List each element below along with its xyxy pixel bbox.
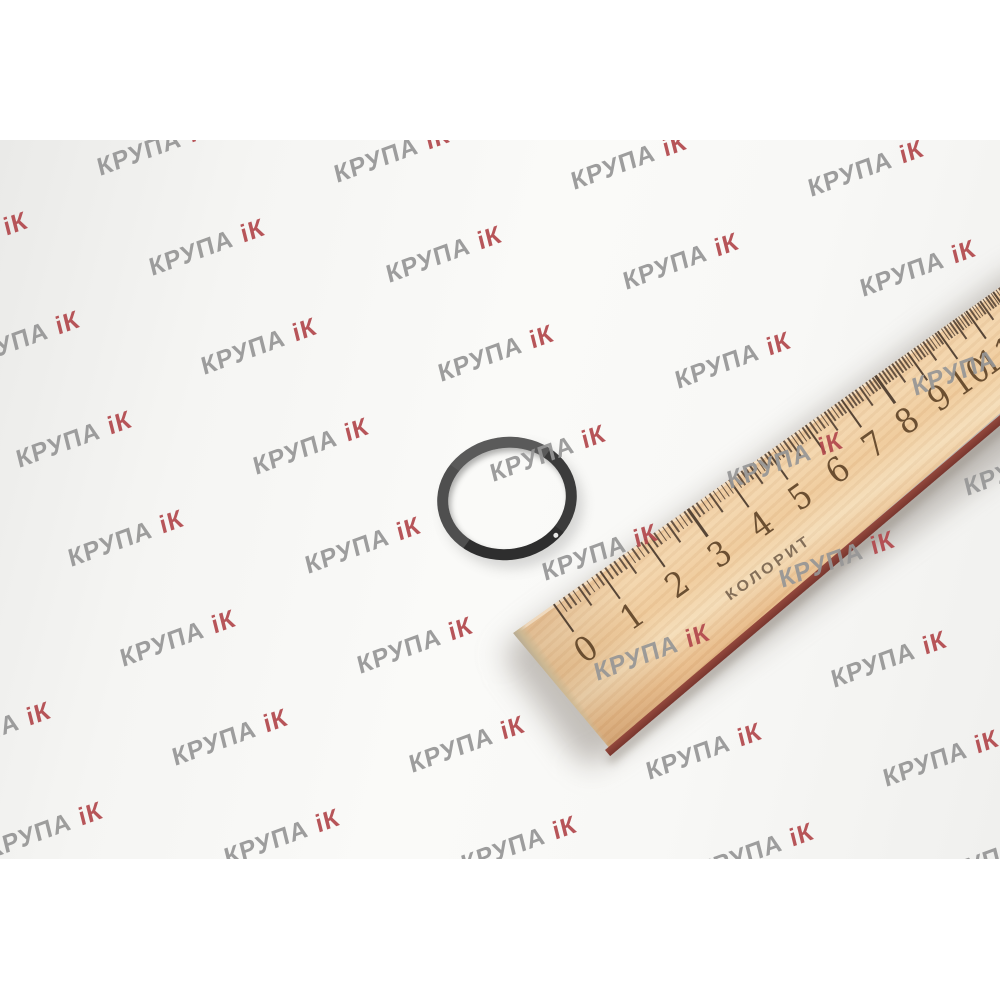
watermark-text-red: іК bbox=[238, 213, 268, 249]
watermark-text-red: іК bbox=[550, 810, 580, 846]
watermark-text-gray: КРУПА bbox=[932, 835, 1000, 859]
watermark-text-red: іК bbox=[787, 817, 817, 853]
watermark-text-gray: КРУПА bbox=[568, 140, 658, 196]
watermark-text-red: іК bbox=[186, 140, 216, 149]
watermark: КРУПАіК bbox=[221, 803, 342, 859]
watermark-text-red: іК bbox=[527, 319, 557, 355]
watermark-text-red: іК bbox=[735, 717, 765, 753]
watermark: КРУПАіК bbox=[695, 817, 816, 859]
watermark-text-gray: КРУПА bbox=[383, 231, 473, 288]
ruler-number: 3 bbox=[700, 532, 739, 576]
watermark-text-gray: КРУПА bbox=[331, 140, 421, 189]
watermark: КРУПАіК bbox=[880, 724, 1000, 794]
watermark-text-red: іК bbox=[157, 504, 187, 540]
watermark-text-red: іК bbox=[209, 604, 239, 640]
watermark: КРУПАіК bbox=[117, 604, 238, 674]
watermark-text-gray: КРУПА bbox=[828, 636, 918, 693]
watermark: КРУПАіК bbox=[250, 412, 371, 482]
watermark: КРУПАіК bbox=[0, 597, 2, 667]
watermark-text-red: іК bbox=[0, 597, 1, 633]
watermark-text-red: іК bbox=[972, 724, 1000, 760]
watermark: КРУПАіК bbox=[0, 696, 54, 766]
watermark: КРУПАіК bbox=[198, 312, 319, 382]
watermark: КРУПАіК bbox=[0, 305, 83, 375]
watermark-text-red: іК bbox=[1, 206, 31, 242]
watermark-text-red: іК bbox=[579, 419, 609, 455]
watermark-text-gray: КРУПА bbox=[221, 814, 311, 859]
ruler-number: 6 bbox=[818, 449, 857, 493]
ruler-number: 5 bbox=[781, 475, 820, 519]
watermark-text-gray: КРУПА bbox=[672, 337, 762, 394]
watermark: КРУПАіК bbox=[65, 504, 186, 574]
watermark-text-red: іК bbox=[313, 803, 343, 839]
watermark: КРУПАіК bbox=[805, 140, 926, 204]
watermark-text-red: іК bbox=[764, 326, 794, 362]
ruler-number: 8 bbox=[888, 399, 927, 443]
watermark-text-gray: КРУПА bbox=[643, 728, 733, 785]
watermark-text-red: іК bbox=[290, 312, 320, 348]
watermark: КРУПАіК bbox=[146, 213, 267, 283]
ruler-number: 4 bbox=[742, 503, 781, 547]
watermark-text-gray: КРУПА bbox=[302, 522, 392, 579]
watermark: КРУПАіК bbox=[568, 140, 689, 197]
watermark: КРУПАіК bbox=[620, 227, 741, 297]
watermark-text-red: іК bbox=[261, 703, 291, 739]
watermark-text-gray: КРУПА bbox=[857, 245, 947, 302]
o-ring bbox=[428, 427, 586, 570]
watermark-text-gray: КРУПА bbox=[880, 735, 970, 792]
watermark-text-red: іК bbox=[897, 140, 927, 170]
watermark: КРУПАіК bbox=[672, 326, 793, 396]
ruler: КОЛОРИТ 01234567891011 bbox=[513, 184, 1000, 755]
ruler-number: 2 bbox=[658, 563, 697, 607]
o-ring-highlight bbox=[553, 532, 559, 538]
watermark-text-red: іК bbox=[394, 511, 424, 547]
watermark-text-gray: КРУПА bbox=[435, 330, 525, 387]
watermark-text-red: іК bbox=[53, 305, 83, 341]
watermark-text-red: іК bbox=[423, 140, 453, 156]
watermark: КРУПАіК bbox=[932, 824, 1000, 859]
watermark: КРУПАіК bbox=[169, 703, 290, 773]
watermark: КРУПАіК bbox=[13, 405, 134, 475]
watermark-text-gray: КРУПА bbox=[695, 828, 785, 859]
watermark: КРУПАіК bbox=[643, 717, 764, 787]
watermark-text-gray: КРУПА bbox=[354, 622, 444, 679]
watermark-text-red: іК bbox=[712, 227, 742, 263]
photo-area: КОЛОРИТ 01234567891011 КРУПАіККРУПАіККРУ… bbox=[0, 140, 1000, 859]
watermark: КРУПАіК bbox=[435, 319, 556, 389]
watermark-text-gray: КРУПА bbox=[805, 145, 895, 202]
watermark-text-gray: КРУПА bbox=[13, 416, 103, 473]
watermark-text-gray: КРУПА bbox=[65, 515, 155, 572]
watermark: КРУПАіК bbox=[828, 625, 949, 695]
watermark-text-gray: КРУПА bbox=[117, 615, 207, 672]
watermark: КРУПАіК bbox=[354, 611, 475, 681]
watermark-text-gray: КРУПА bbox=[0, 807, 74, 859]
watermark: КРУПАіК bbox=[383, 220, 504, 290]
watermark-text-gray: КРУПА bbox=[0, 707, 22, 764]
watermark: КРУПАіК bbox=[331, 140, 452, 190]
watermark-text-gray: КРУПА bbox=[146, 224, 236, 281]
watermark-text-red: іК bbox=[105, 405, 135, 441]
ruler-number: 0 bbox=[566, 628, 605, 672]
watermark: КРУПАіК bbox=[0, 206, 31, 276]
watermark: КРУПАіК bbox=[0, 796, 106, 859]
watermark-text-gray: КРУПА bbox=[458, 821, 548, 859]
watermark-text-gray: КРУПА bbox=[250, 423, 340, 480]
watermark-text-red: іК bbox=[24, 696, 54, 732]
watermark-text-gray: КРУПА bbox=[198, 323, 288, 380]
watermark-text-red: іК bbox=[920, 625, 950, 661]
watermark-text-gray: КРУПА bbox=[620, 238, 710, 295]
watermark-text-gray: КРУПА bbox=[406, 721, 496, 778]
watermark-text-red: іК bbox=[342, 412, 372, 448]
watermark: КРУПАіК bbox=[458, 810, 579, 859]
watermark: КРУПАіК bbox=[94, 140, 215, 183]
watermark-text-red: іК bbox=[498, 710, 528, 746]
watermark-text-red: іК bbox=[949, 234, 979, 270]
watermark-text-gray: КРУПА bbox=[169, 714, 259, 771]
ruler-number: 1 bbox=[613, 595, 652, 639]
watermark-text-gray: КРУПА bbox=[0, 316, 51, 373]
watermark-text-gray: КРУПА bbox=[94, 140, 184, 182]
watermark-text-red: іК bbox=[446, 611, 476, 647]
watermark-text-red: іК bbox=[475, 220, 505, 256]
watermark: КРУПАіК bbox=[302, 511, 423, 581]
watermark-text-red: іК bbox=[660, 140, 690, 163]
watermark: КРУПАіК bbox=[406, 710, 527, 780]
watermark: КРУПАіК bbox=[857, 234, 978, 304]
watermark-text-red: іК bbox=[76, 796, 106, 832]
ruler-number: 7 bbox=[854, 423, 893, 467]
